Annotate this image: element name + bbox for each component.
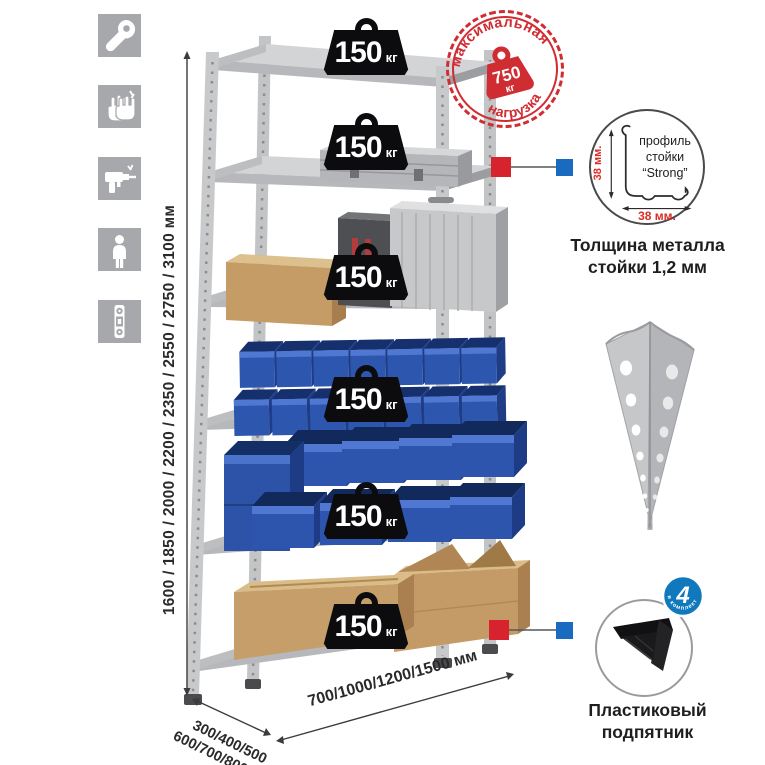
shelf-load-badge: 150кг (323, 255, 409, 300)
callout-profile (491, 157, 573, 177)
profile-text-line1: профиль (635, 133, 695, 149)
foot-caption: Пластиковый подпятник (560, 699, 735, 743)
profile-detail-circle: 38 мм. 38 мм. профиль стойки “Strong” (589, 109, 705, 225)
product-infographic: 1600 / 1850 / 2000 / 2200 / 2350 / 2550 … (0, 0, 765, 765)
callout-marker-red-bottom (489, 620, 509, 640)
shelf-load-badge: 150кг (323, 125, 409, 170)
plastic-foot-drawing (613, 618, 673, 671)
profile-height-dim: 38 мм. (592, 134, 604, 192)
shelf-load-badge: 150кг (323, 604, 409, 649)
profile-text-line3: “Strong” (635, 165, 695, 181)
drill-icon (98, 157, 141, 200)
callout-marker-red-top (491, 157, 511, 177)
shelf-load-badge: 150кг (323, 377, 409, 422)
shelf-load-badge: 150кг (323, 30, 409, 75)
profile-width-dim: 38 мм. (627, 209, 687, 223)
level-icon (98, 300, 141, 343)
callout-marker-blue-bottom (556, 622, 573, 639)
stamp-weight-icon: 750 кг (476, 43, 535, 101)
shelf-load-badge: 150кг (323, 494, 409, 539)
person-icon (98, 228, 141, 271)
item-cardboard-box-right (394, 540, 530, 652)
wrench-icon (98, 14, 141, 57)
count-badge: 4 в комплекте (661, 574, 705, 618)
gloves-icon (98, 85, 141, 128)
profile-caption: Толщина металла стойки 1,2 мм (560, 234, 735, 278)
callout-foot (489, 620, 573, 640)
item-large-bins-upper-row (285, 421, 527, 486)
upright-profile-picture (606, 322, 694, 530)
callout-marker-blue-top (556, 159, 573, 176)
height-dimension-label: 1600 / 1850 / 2000 / 2200 / 2350 / 2550 … (161, 130, 183, 690)
profile-text-line2: стойки (635, 149, 695, 165)
